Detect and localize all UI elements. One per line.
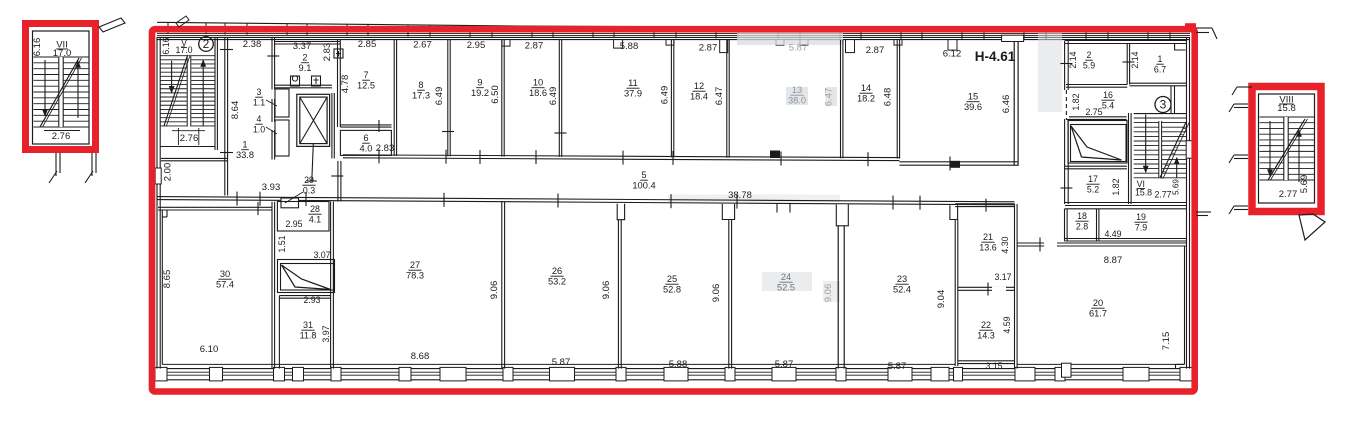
svg-text:17.3: 17.3 [412,91,430,101]
svg-text:2: 2 [1087,50,1092,60]
svg-text:15.8: 15.8 [1277,103,1296,114]
svg-text:18: 18 [1077,211,1087,221]
svg-text:11.8: 11.8 [300,331,317,341]
svg-text:20: 20 [1093,298,1103,308]
svg-text:3.93: 3.93 [262,182,281,193]
svg-text:1: 1 [1158,54,1163,64]
svg-text:6.47: 6.47 [824,88,835,107]
svg-text:6.48: 6.48 [883,88,894,107]
svg-text:4.1: 4.1 [309,215,321,225]
svg-text:0.3: 0.3 [303,186,315,196]
svg-text:38.78: 38.78 [728,190,752,201]
svg-text:9.06: 9.06 [711,284,722,303]
svg-text:4.78: 4.78 [340,75,351,94]
svg-text:7.9: 7.9 [1135,223,1147,233]
svg-text:30: 30 [220,269,230,279]
svg-text:5.87: 5.87 [789,43,808,54]
svg-text:6.49: 6.49 [660,86,671,105]
svg-text:3.07: 3.07 [313,250,330,260]
svg-text:2.00: 2.00 [163,163,174,182]
svg-text:2.77: 2.77 [1279,189,1298,200]
svg-text:5.69: 5.69 [1172,179,1181,195]
svg-text:2.14: 2.14 [1068,51,1078,68]
svg-text:6.47: 6.47 [714,87,725,106]
svg-text:16: 16 [1103,90,1113,100]
svg-text:8.64: 8.64 [230,101,241,120]
svg-text:53.2: 53.2 [548,277,566,287]
svg-text:1.0: 1.0 [253,125,265,135]
svg-text:1.82: 1.82 [1071,93,1081,110]
svg-text:10: 10 [533,78,543,88]
svg-text:24: 24 [781,272,791,282]
svg-text:1.51: 1.51 [277,235,287,252]
svg-text:52.5: 52.5 [777,283,795,293]
svg-text:5.4: 5.4 [1102,101,1114,111]
svg-text:2.83: 2.83 [376,143,395,154]
svg-text:7.15: 7.15 [1161,332,1172,351]
svg-text:2.87: 2.87 [525,41,544,52]
svg-text:19.2: 19.2 [471,88,489,98]
svg-text:14: 14 [861,83,871,93]
svg-text:6.50: 6.50 [490,85,501,104]
svg-text:3.17: 3.17 [994,272,1011,282]
svg-text:23: 23 [897,274,907,284]
svg-text:5.87: 5.87 [552,357,571,368]
svg-text:57.4: 57.4 [216,280,234,290]
svg-text:6.7: 6.7 [1154,65,1166,75]
svg-text:31: 31 [303,320,313,330]
svg-text:100.4: 100.4 [632,181,655,191]
svg-text:52.8: 52.8 [663,285,681,295]
svg-text:1.1: 1.1 [253,98,265,108]
svg-text:15: 15 [968,92,978,102]
svg-text:9.1: 9.1 [299,63,312,73]
svg-text:2.85: 2.85 [358,39,377,50]
svg-text:4.30: 4.30 [1000,236,1010,253]
svg-text:8.87: 8.87 [1104,255,1123,266]
svg-text:6.49: 6.49 [434,87,445,106]
svg-text:8.65: 8.65 [162,270,173,289]
svg-text:29: 29 [304,175,314,185]
svg-text:6.12: 6.12 [943,49,962,60]
svg-text:5.9: 5.9 [1083,61,1095,71]
svg-text:3.97: 3.97 [321,325,331,342]
svg-text:8.68: 8.68 [411,351,430,362]
svg-text:18.6: 18.6 [529,88,547,98]
svg-text:78.3: 78.3 [406,271,424,281]
svg-text:6.16: 6.16 [161,37,171,54]
svg-text:37.9: 37.9 [624,89,642,99]
svg-text:2.77: 2.77 [1154,190,1171,200]
svg-text:4.59: 4.59 [1002,316,1012,333]
svg-text:7: 7 [363,70,368,80]
svg-text:8: 8 [418,80,423,90]
svg-text:1: 1 [242,140,247,150]
svg-text:5.88: 5.88 [620,41,639,52]
svg-text:6.10: 6.10 [200,344,219,355]
svg-text:27: 27 [410,260,420,270]
svg-text:2.87: 2.87 [699,43,718,54]
svg-text:2.76: 2.76 [180,133,199,144]
svg-text:61.7: 61.7 [1089,309,1107,319]
svg-text:5.88: 5.88 [669,359,688,370]
svg-text:33.8: 33.8 [236,150,254,160]
svg-text:13: 13 [792,85,802,95]
svg-text:19: 19 [1136,212,1146,222]
svg-text:12: 12 [694,81,704,91]
svg-text:9: 9 [477,78,482,88]
svg-text:25: 25 [667,274,677,284]
svg-text:26: 26 [552,266,562,276]
svg-text:52.4: 52.4 [893,285,911,295]
svg-text:2: 2 [203,37,210,51]
svg-text:9.06: 9.06 [489,281,500,300]
svg-text:1.82: 1.82 [1111,178,1121,195]
svg-text:6.46: 6.46 [1001,95,1012,114]
svg-text:14.3: 14.3 [977,331,995,341]
svg-text:2.95: 2.95 [285,219,302,229]
svg-text:11: 11 [628,78,638,88]
svg-text:2.38: 2.38 [243,39,262,50]
svg-text:2: 2 [302,53,307,63]
svg-text:2.95: 2.95 [467,40,486,51]
svg-text:17: 17 [1088,174,1098,184]
svg-text:6.49: 6.49 [548,87,559,106]
svg-text:2.14: 2.14 [1130,51,1140,68]
svg-text:9.04: 9.04 [936,290,947,309]
svg-text:3.15: 3.15 [985,361,1002,371]
svg-text:9.06: 9.06 [823,284,834,303]
svg-text:6.16: 6.16 [32,38,43,57]
svg-text:5: 5 [641,170,646,180]
svg-text:2.93: 2.93 [303,295,320,305]
svg-text:4.0: 4.0 [360,144,373,154]
svg-text:21: 21 [983,232,993,242]
svg-text:17.0: 17.0 [175,45,192,55]
svg-text:2.76: 2.76 [52,131,71,142]
svg-text:2.83: 2.83 [322,43,333,62]
svg-text:22: 22 [981,320,991,330]
svg-text:5.69: 5.69 [1299,175,1310,194]
svg-text:Н-4.61: Н-4.61 [975,49,1016,64]
svg-text:38.0: 38.0 [788,96,806,106]
svg-text:2.8: 2.8 [1076,222,1088,232]
svg-text:5.87: 5.87 [775,359,794,370]
svg-text:3: 3 [1160,98,1167,112]
svg-text:5.2: 5.2 [1087,185,1099,195]
svg-text:28: 28 [310,204,320,214]
svg-text:2.67: 2.67 [413,40,432,51]
svg-text:13.6: 13.6 [979,243,997,253]
svg-text:6: 6 [363,133,368,143]
svg-text:4.49: 4.49 [1104,229,1121,239]
svg-text:9.06: 9.06 [601,281,612,300]
svg-text:18.4: 18.4 [690,92,708,102]
svg-text:39.6: 39.6 [964,102,982,112]
svg-text:5.87: 5.87 [888,361,907,372]
svg-text:2.87: 2.87 [866,45,885,56]
svg-text:3.37: 3.37 [293,41,312,52]
svg-text:2.75: 2.75 [1085,107,1102,117]
svg-text:18.2: 18.2 [857,94,875,104]
svg-text:4: 4 [257,114,262,124]
svg-text:12.5: 12.5 [357,81,375,91]
svg-text:15.8: 15.8 [1135,188,1152,198]
svg-text:3: 3 [257,87,262,97]
